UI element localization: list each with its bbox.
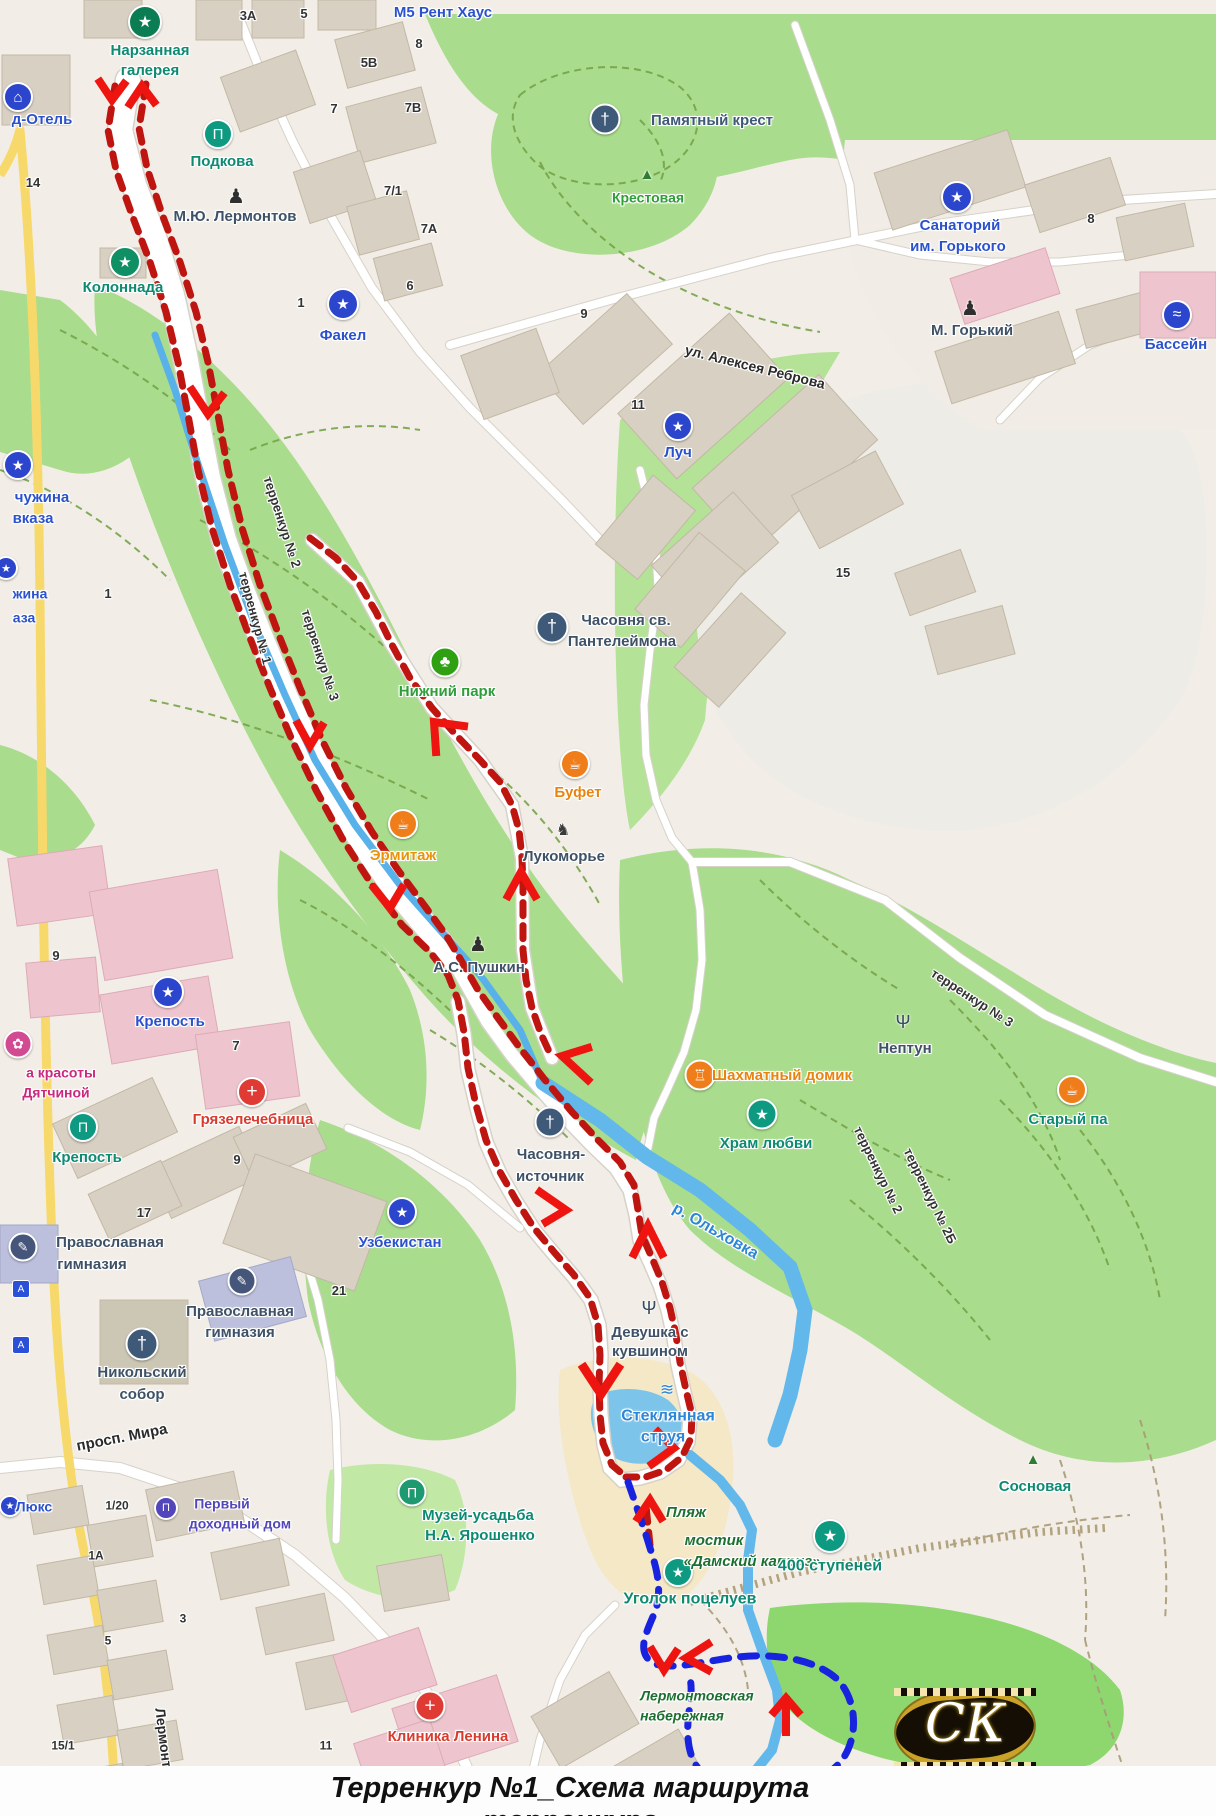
grand-hotel-label[interactable]: д-Отель (12, 112, 73, 128)
bus-stop-icon[interactable]: A (12, 1280, 30, 1298)
gymnasium2-label[interactable]: Православная (186, 1304, 294, 1320)
uzbekistan-icon: ★ (396, 1204, 409, 1221)
bus-stop-icon[interactable]: A (12, 1336, 30, 1354)
bldg-num: 6 (406, 279, 413, 293)
map-base-graphics (0, 0, 1216, 1816)
mostik-label[interactable]: мостик (685, 1533, 744, 1549)
lukomorye-icon[interactable]: ♞ (555, 822, 571, 838)
zhemchuzhina-icon: ★ (12, 457, 25, 474)
gymnasium1-label[interactable]: Православная (56, 1235, 164, 1251)
neptun-label[interactable]: Нептун (878, 1041, 931, 1057)
narzan-gallery-icon: ★ (138, 12, 152, 32)
nikolsky-sobor-icon: † (137, 1334, 147, 1355)
museum-yaroshenko-label[interactable]: Н.А. Ярошенко (425, 1528, 535, 1544)
bldg-num: 3 (180, 1613, 187, 1626)
devushka-label[interactable]: Девушка с (611, 1325, 688, 1341)
steklyannaya-struya-icon: ≋ (660, 1380, 674, 1400)
zhemchuzhina-label[interactable]: чужина (15, 490, 70, 506)
kolonnada-icon: ★ (118, 253, 131, 271)
luch-icon: ★ (672, 418, 685, 435)
krepost-museum-icon: Π (78, 1119, 88, 1135)
panteleimon-label[interactable]: Пантелеймона (568, 634, 676, 650)
khram-lyubvi-icon: ★ (755, 1105, 768, 1123)
ermitazh-label[interactable]: Эрмитаж (370, 848, 436, 864)
beauty-label[interactable]: а красоты (26, 1066, 96, 1081)
krepost-green-label[interactable]: Крепость (52, 1150, 122, 1166)
chasovnya-istochnik-label[interactable]: источник (516, 1169, 584, 1185)
m5-rent-haus-label[interactable]: М5 Рент Хаус (394, 5, 492, 21)
ugolok-potseluev-label[interactable]: Уголок поцелуев (624, 1592, 757, 1609)
bassein-icon: ≈ (1173, 306, 1182, 324)
uzbekistan-label[interactable]: Узбекистан (358, 1235, 441, 1251)
klinika-lenina-label[interactable]: Клиника Ленина (388, 1729, 509, 1745)
map-canvas[interactable]: ★⌂Π♟★★†▲★♟≈★★★†♣☕☕♞♟★✿Ψ♖+☕★Π†✎✎★†AAΨ≋★ΠΠ… (0, 0, 1216, 1816)
steklyannaya-label[interactable]: струя (641, 1430, 685, 1447)
zhemchuzhina2-icon: ★ (1, 562, 11, 575)
bassein-icon[interactable]: ≈ (1162, 300, 1192, 330)
krestovaya-label[interactable]: Крестовая (612, 191, 684, 206)
sanatoriy-gorkogo-label[interactable]: им. Горького (910, 239, 1006, 255)
bldg-num: 8 (415, 37, 422, 51)
kolonnada-icon[interactable]: ★ (109, 246, 141, 278)
beauty-studio-icon: ✿ (12, 1036, 24, 1053)
chasovnya-istochnik-label[interactable]: Часовня- (517, 1147, 585, 1163)
zhemchuzhina2-label[interactable]: жина (13, 587, 48, 602)
lermontovskaya-label[interactable]: набережная (640, 1709, 724, 1724)
nikolsky-label[interactable]: Никольский (97, 1365, 186, 1381)
plyazh-label[interactable]: Пляж (666, 1505, 706, 1521)
sosnovaya-label[interactable]: Сосновая (999, 1479, 1071, 1495)
uzbekistan-icon[interactable]: ★ (387, 1197, 417, 1227)
krestovaya-mountain-icon[interactable]: ▲ (639, 166, 655, 182)
gryazelechebnitsa-icon: + (246, 1081, 257, 1103)
bufet-cafe-icon: ☕ (569, 756, 582, 773)
lermontov-statue-icon[interactable]: ♟ (226, 186, 246, 206)
beauty-label[interactable]: Дятчиной (22, 1086, 89, 1101)
grand-hotel-icon[interactable]: ⌂ (3, 82, 33, 112)
bldg-num: 9 (233, 1153, 240, 1167)
bldg-num: 17 (137, 1206, 151, 1220)
studio-logo: СК (890, 1686, 1040, 1772)
zhemchuzhina2-label[interactable]: аза (13, 611, 36, 626)
pamyatny-krest-icon: † (600, 109, 609, 129)
krepost-museum-icon[interactable]: Π (68, 1112, 98, 1142)
ermitazh-cafe-icon: ☕ (397, 816, 410, 833)
lukomorye-icon: ♞ (556, 820, 570, 840)
bldg-num: 7 (330, 102, 337, 116)
chasovnya-istochnik-icon: † (545, 1112, 554, 1132)
bldg-num: 14 (26, 176, 40, 190)
grand-hotel-icon: ⌂ (13, 89, 22, 106)
400-stupeney-icon[interactable]: ★ (813, 1519, 847, 1553)
fakel-icon: ★ (336, 295, 349, 313)
bldg-num: 5 (105, 1635, 112, 1648)
nikolsky-label[interactable]: собор (119, 1387, 164, 1403)
fakel-icon[interactable]: ★ (327, 288, 359, 320)
pamyatny-krest-label[interactable]: Памятный крест (651, 113, 773, 129)
gryazelechebnitsa-label[interactable]: Грязелечебница (193, 1112, 314, 1128)
stary-park-cafe-icon[interactable]: ☕ (1057, 1075, 1087, 1105)
bldg-num: 1 (297, 296, 304, 310)
bufet-cafe-icon[interactable]: ☕ (560, 749, 590, 779)
map-caption: Терренкур №1_Схема маршрута терренкура (270, 1772, 870, 1816)
neptun-fountain-icon[interactable]: Ψ (894, 1013, 912, 1031)
khram-lyubvi-icon[interactable]: ★ (747, 1099, 778, 1130)
lyuks-icon: ★ (6, 1501, 15, 1512)
panteleimon-label[interactable]: Часовня св. (581, 613, 670, 629)
kolonnada-label[interactable]: Колоннада (83, 280, 164, 296)
luch-label[interactable]: Луч (664, 445, 692, 461)
krepost-sanatoriy-icon: ★ (161, 983, 174, 1001)
krepost-blue-label[interactable]: Крепость (135, 1014, 205, 1030)
shakhmatny-domik-label[interactable]: Шахматный домик (712, 1068, 852, 1084)
400-stupeney-label[interactable]: 400 ступеней (778, 1559, 882, 1576)
devushka-fountain-icon: Ψ (641, 1298, 656, 1319)
sosnovaya-mountain-icon: ▲ (1026, 1451, 1041, 1468)
bldg-num: 1/20 (105, 1500, 128, 1513)
klinika-lenina-icon: + (424, 1695, 435, 1717)
lukomorye-label[interactable]: Лукоморье (523, 849, 605, 865)
bldg-num: 7/1 (384, 184, 402, 198)
bldg-num: 5 (300, 7, 307, 21)
bldg-num: 15/1 (51, 1740, 74, 1753)
devushka-label[interactable]: кувшином (612, 1344, 688, 1360)
panteleimon-chapel-icon: † (547, 617, 557, 638)
dokhodny-dom-label[interactable]: доходный дом (189, 1517, 291, 1532)
gymnasium2-label[interactable]: гимназия (205, 1325, 275, 1341)
pamyatny-krest-icon[interactable]: † (590, 104, 621, 135)
bus-stop-icon: A (18, 1340, 25, 1351)
podkova-museum-icon[interactable]: Π (203, 119, 233, 149)
khram-lyubvi-label[interactable]: Храм любви (720, 1136, 813, 1152)
nizhny-park-tree-icon: ♣ (440, 653, 451, 671)
dokhodny-dom-icon[interactable]: Π (154, 1496, 178, 1520)
narzan-gallery-label[interactable]: галерея (121, 63, 180, 79)
sanatoriy-gorkogo-icon[interactable]: ★ (941, 181, 973, 213)
podkova-label[interactable]: Подкова (190, 154, 253, 170)
bldg-num: 5В (361, 56, 378, 70)
gymnasium2-icon: ✎ (237, 1273, 248, 1289)
ermitazh-cafe-icon[interactable]: ☕ (388, 809, 418, 839)
zhemchuzhina-icon[interactable]: ★ (3, 450, 33, 480)
chasovnya-istochnik-icon[interactable]: † (535, 1107, 566, 1138)
museum-yaroshenko-icon[interactable]: Π (398, 1478, 427, 1507)
bldg-num: 1А (88, 1550, 103, 1563)
museum-yaroshenko-label[interactable]: Музей-усадьба (422, 1508, 534, 1524)
bldg-num: 8 (1087, 212, 1094, 226)
dokhodny-dom-label[interactable]: Первый (194, 1497, 250, 1512)
bldg-num: 21 (332, 1284, 346, 1298)
pushkin-statue-icon: ♟ (469, 932, 487, 957)
pushkin-statue-icon[interactable]: ♟ (468, 934, 488, 954)
krestovaya-mountain-icon: ▲ (640, 166, 655, 183)
nizhny-park-tree-icon[interactable]: ♣ (430, 647, 461, 678)
stary-park-cafe-icon: ☕ (1066, 1082, 1079, 1099)
gorky-label[interactable]: М. Горький (931, 323, 1013, 339)
gymnasium1-label[interactable]: гимназия (57, 1257, 127, 1273)
bldg-num: 7А (421, 222, 438, 236)
museum-yaroshenko-icon: Π (407, 1484, 417, 1500)
lermontov-statue-icon: ♟ (227, 184, 245, 209)
bldg-num: 7В (405, 101, 422, 115)
gorky-statue-icon[interactable]: ♟ (960, 298, 980, 318)
bassein-label[interactable]: Бассейн (1145, 337, 1207, 353)
gymnasium2-icon[interactable]: ✎ (228, 1267, 257, 1296)
lyuks-label[interactable]: Люкс (16, 1500, 52, 1515)
shakhmatny-domik-icon: ♖ (693, 1066, 706, 1084)
stary-park-label[interactable]: Старый па (1028, 1112, 1107, 1128)
gryazelechebnitsa-icon[interactable]: + (237, 1077, 267, 1107)
devushka-fountain-icon[interactable]: Ψ (640, 1299, 658, 1317)
gymnasium1-icon: ✎ (18, 1239, 29, 1255)
beauty-studio-icon[interactable]: ✿ (4, 1030, 33, 1059)
nikolsky-sobor-icon[interactable]: † (126, 1328, 159, 1361)
bldg-num: 1 (104, 587, 111, 601)
dokhodny-dom-icon: Π (162, 1502, 170, 1514)
narzan-gallery-icon[interactable]: ★ (128, 5, 162, 39)
pushkin-label[interactable]: А.С. Пушкин (433, 960, 525, 976)
bufet-label[interactable]: Буфет (554, 785, 601, 801)
studio-logo-text: СК (890, 1694, 1040, 1754)
krepost-sanatoriy-icon[interactable]: ★ (152, 976, 184, 1008)
gymnasium1-icon[interactable]: ✎ (9, 1233, 38, 1262)
fakel-label[interactable]: Факел (320, 328, 367, 344)
sosnovaya-mountain-icon[interactable]: ▲ (1025, 1451, 1041, 1467)
steklyannaya-struya-icon[interactable]: ≋ (658, 1381, 676, 1399)
sanatoriy-gorkogo-label[interactable]: Санаторий (920, 218, 1001, 234)
bldg-num: 15 (836, 566, 850, 580)
lermontovskaya-label[interactable]: Лермонтовская (640, 1689, 753, 1704)
bldg-num: 9 (580, 307, 587, 321)
shakhmatny-domik-icon[interactable]: ♖ (685, 1060, 716, 1091)
bldg-num: 3А (240, 9, 257, 23)
luch-icon[interactable]: ★ (663, 411, 693, 441)
lermontov-label[interactable]: М.Ю. Лермонтов (174, 209, 297, 225)
bldg-num: 11 (631, 398, 645, 412)
zhemchuzhina-label[interactable]: вказа (13, 511, 54, 527)
steklyannaya-label[interactable]: Стеклянная (621, 1409, 715, 1426)
bus-stop-icon: A (18, 1284, 25, 1295)
panteleimon-chapel-icon[interactable]: † (536, 611, 569, 644)
nizhny-park-label[interactable]: Нижний парк (399, 684, 495, 700)
podkova-museum-icon: Π (213, 126, 224, 143)
bldg-num: 9 (52, 949, 59, 963)
400-stupeney-icon: ★ (823, 1526, 837, 1546)
gorky-statue-icon: ♟ (961, 296, 979, 321)
klinika-lenina-icon[interactable]: + (415, 1691, 446, 1722)
bldg-num: 7 (232, 1039, 239, 1053)
ugolok-potseluev-icon: ★ (672, 1564, 685, 1581)
sanatoriy-gorkogo-icon: ★ (950, 188, 963, 206)
neptun-fountain-icon: Ψ (895, 1012, 910, 1033)
bldg-num: 11 (320, 1740, 333, 1753)
narzan-gallery-label[interactable]: Нарзанная (111, 43, 190, 59)
